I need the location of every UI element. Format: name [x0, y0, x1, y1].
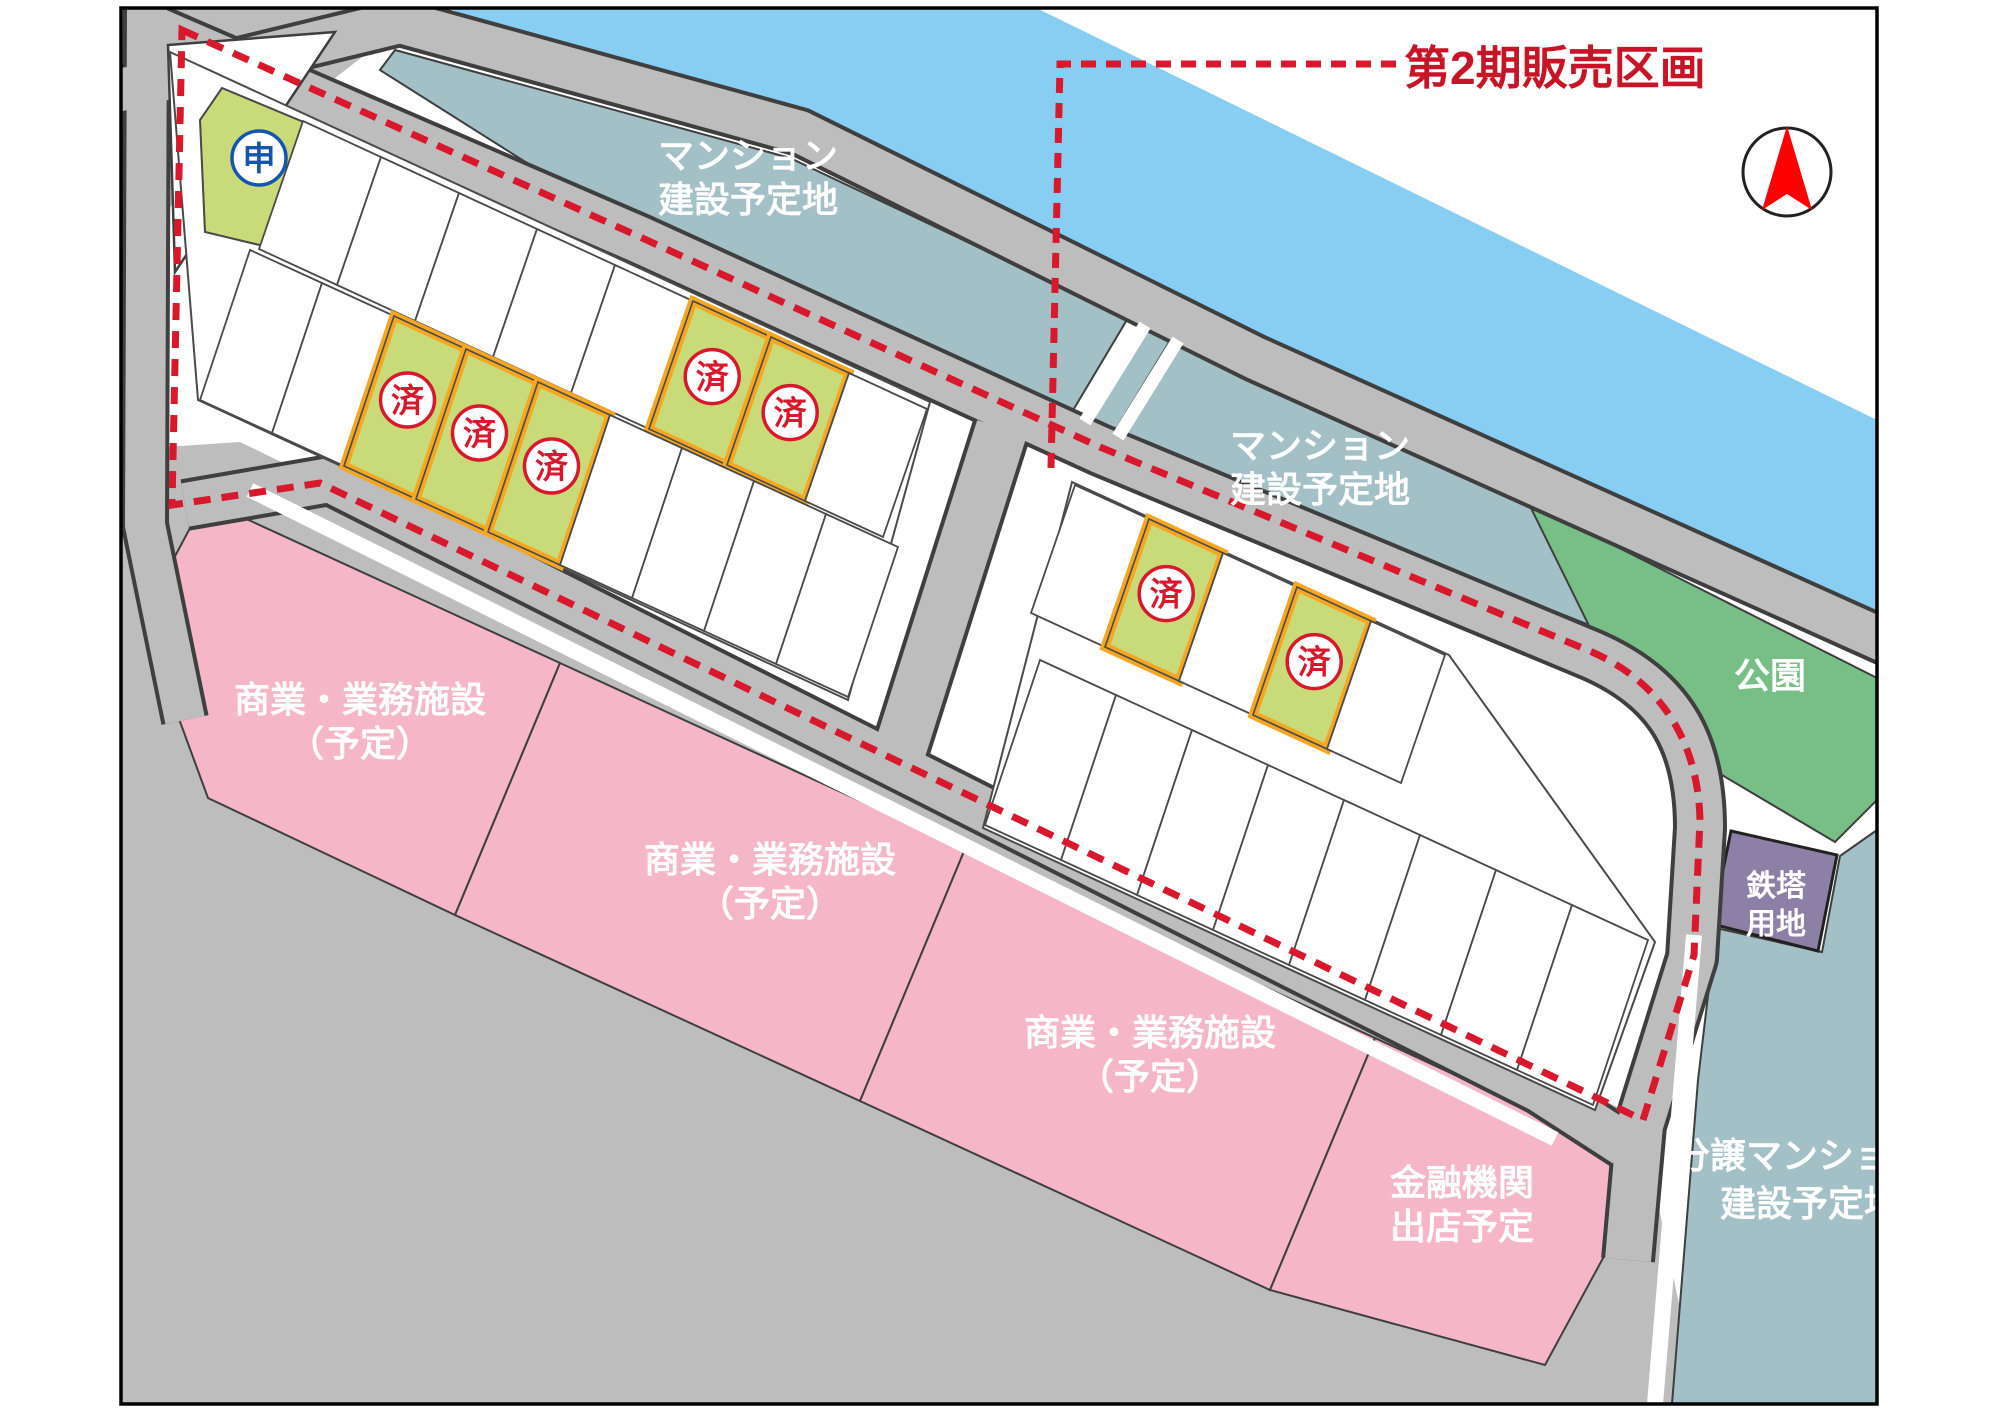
sold-badge-text: 済 — [391, 382, 425, 419]
north-compass-icon — [1743, 126, 1831, 216]
sold-badge-text: 済 — [1298, 644, 1332, 681]
phase2-title: 第2期販売区画 — [1404, 42, 1706, 94]
park-label: 公園 — [1734, 655, 1806, 696]
sold-badge-text: 済 — [535, 448, 569, 485]
site-plan-map: 申済済済済済済済 マンション建設予定地 マンション建設予定地 公園 鉄塔用地 分… — [0, 0, 2000, 1414]
applied-badge-text: 申 — [243, 140, 276, 177]
sold-badge-text: 済 — [1150, 576, 1184, 613]
sold-badge-text: 済 — [774, 395, 808, 432]
sold-badge-text: 済 — [696, 359, 730, 396]
sold-badge-text: 済 — [463, 415, 497, 452]
map-canvas: 申済済済済済済済 マンション建設予定地 マンション建設予定地 公園 鉄塔用地 分… — [0, 0, 2000, 1414]
